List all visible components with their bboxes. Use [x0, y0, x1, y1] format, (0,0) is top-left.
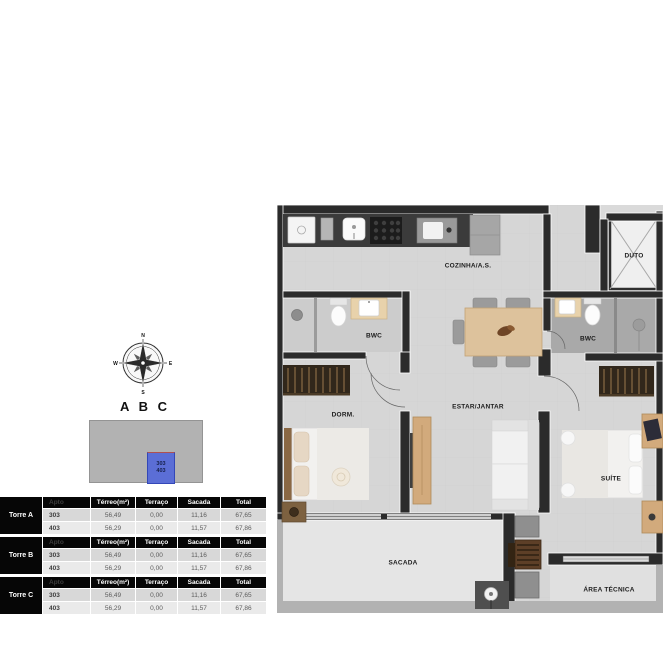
area-tables: Torre A Apto Térreo(m²) Terraço Sacada T…	[0, 497, 266, 617]
torre-label: Torre C	[0, 577, 42, 614]
room-label-duto: DUTO	[624, 253, 643, 260]
washer-icon	[288, 217, 315, 243]
compass-west-label: W	[113, 361, 118, 367]
column-header: Total	[221, 537, 266, 548]
room-label-suite: SUÍTE	[601, 476, 621, 483]
toilet-icon	[331, 306, 346, 326]
floor-plan: COZINHA/A.S. DUTO BWC BWC DORM. ESTAR/JA…	[277, 205, 663, 620]
column-header: Sacada	[178, 537, 220, 548]
table-cell: 56,49	[91, 549, 135, 561]
compass-east-label: E	[169, 361, 173, 367]
table-cell: 56,49	[91, 589, 135, 601]
compass-icon: N S W E	[112, 330, 174, 396]
column-header: Total	[221, 577, 266, 588]
bed-headboard	[284, 428, 292, 500]
column-header: Sacada	[178, 497, 220, 508]
table-cell: 67,65	[221, 589, 266, 601]
area-table-torre-c: Torre C Apto Térreo(m²) Terraço Sacada T…	[0, 577, 266, 614]
column-header: Terraço	[136, 497, 177, 508]
table-cell: 11,57	[178, 562, 220, 574]
room-label-estar-jantar: ESTAR/JANTAR	[452, 404, 504, 411]
unit-number-403: 403	[156, 468, 165, 475]
table-cell: 56,29	[91, 522, 135, 534]
table-cell: 67,86	[221, 602, 266, 614]
column-header: Térreo(m²)	[91, 537, 135, 548]
room-label-sacada: SACADA	[388, 560, 417, 567]
table-cell: 11,16	[178, 589, 220, 601]
table-cell: 0,00	[136, 549, 177, 561]
unit-number-303: 303	[156, 461, 165, 468]
compass-south-label: S	[141, 390, 145, 396]
table-cell: 403	[43, 562, 90, 574]
column-header: Apto	[43, 497, 90, 508]
column-header: Apto	[43, 577, 90, 588]
table-cell: 303	[43, 549, 90, 561]
column-header: Sacada	[178, 577, 220, 588]
toilet-icon	[585, 305, 600, 325]
room-label-dorm: DORM.	[332, 412, 355, 419]
table-cell: 403	[43, 522, 90, 534]
table-cell: 0,00	[136, 522, 177, 534]
compass-rose: N S W E	[112, 330, 174, 401]
area-table-torre-b: Torre B Apto Térreo(m²) Terraço Sacada T…	[0, 537, 266, 574]
shower-icon	[292, 310, 303, 321]
table-cell: 56,49	[91, 509, 135, 521]
table-cell: 0,00	[136, 562, 177, 574]
table-cell: 11,16	[178, 549, 220, 561]
column-header: Total	[221, 497, 266, 508]
room-label-cozinha: COZINHA/A.S.	[445, 263, 491, 270]
room-label-bwc-left: BWC	[366, 333, 382, 340]
table-cell: 56,29	[91, 562, 135, 574]
torre-label: Torre B	[0, 537, 42, 574]
table-cell: 0,00	[136, 602, 177, 614]
column-header: Térreo(m²)	[91, 497, 135, 508]
table-cell: 0,00	[136, 589, 177, 601]
table-cell: 403	[43, 602, 90, 614]
table-cell: 303	[43, 509, 90, 521]
shower-icon	[633, 319, 645, 331]
laundry-tank-icon	[321, 218, 333, 240]
table-cell: 67,86	[221, 522, 266, 534]
room-label-area-tecnica: ÁREA TÉCNICA	[583, 587, 634, 594]
unit-highlight-303-403[interactable]: 303 403	[147, 452, 175, 484]
torre-label: Torre A	[0, 497, 42, 534]
table-cell: 303	[43, 589, 90, 601]
table-cell: 67,65	[221, 549, 266, 561]
column-header: Apto	[43, 537, 90, 548]
table-cell: 11,57	[178, 602, 220, 614]
towers-title: A B C	[86, 399, 204, 414]
room-label-bwc-right: BWC	[580, 336, 596, 343]
page: N S W E A B C 303 403 Torre A Apto Térre…	[0, 0, 665, 665]
table-cell: 67,65	[221, 509, 266, 521]
column-header: Terraço	[136, 537, 177, 548]
table-cell: 11,57	[178, 522, 220, 534]
column-header: Terraço	[136, 577, 177, 588]
area-table-torre-a: Torre A Apto Térreo(m²) Terraço Sacada T…	[0, 497, 266, 534]
table-cell: 0,00	[136, 509, 177, 521]
balcony-drain	[475, 581, 509, 609]
column-header: Térreo(m²)	[91, 577, 135, 588]
table-cell: 67,86	[221, 562, 266, 574]
key-plan: 303 403	[89, 420, 203, 483]
compass-north-label: N	[141, 333, 145, 339]
table-cell: 56,29	[91, 602, 135, 614]
table-cell: 11,16	[178, 509, 220, 521]
